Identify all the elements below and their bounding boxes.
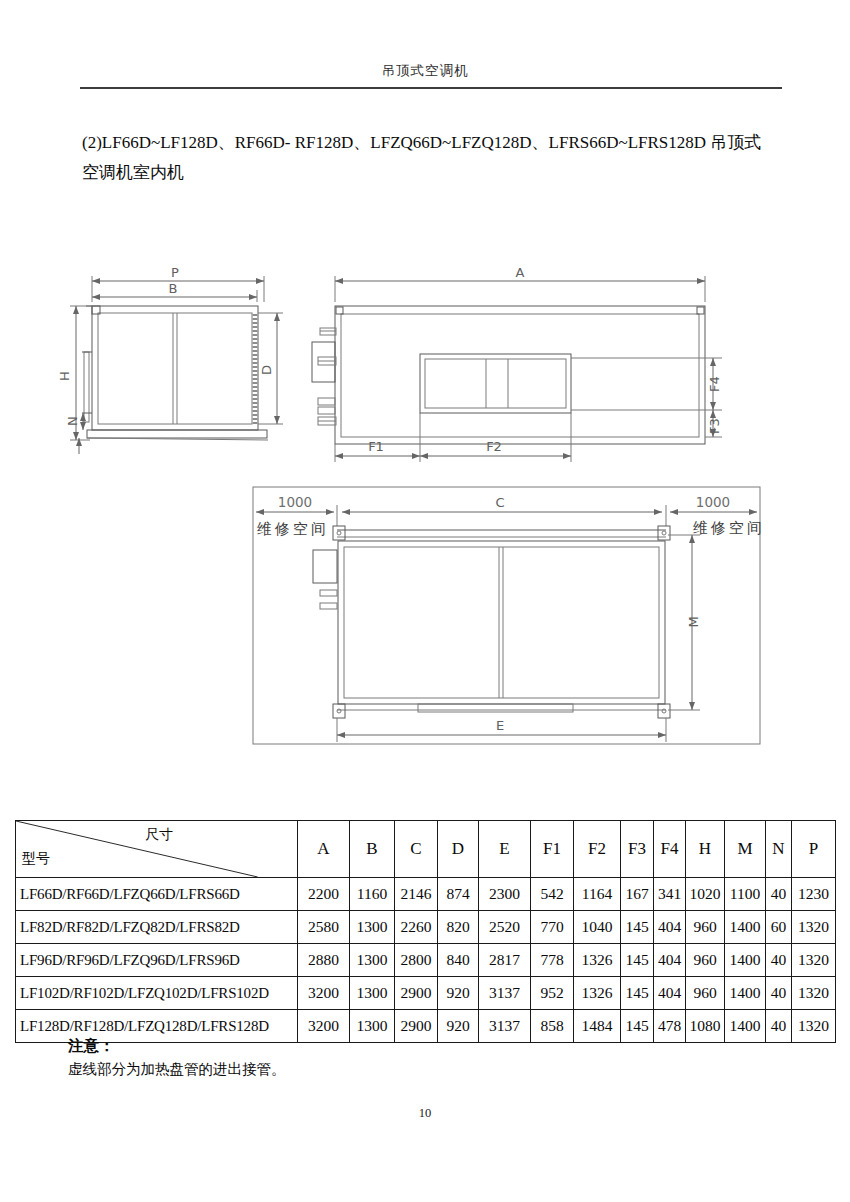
corner-label-model: 型号: [22, 850, 50, 868]
value-cell: 858: [531, 1010, 574, 1043]
value-cell: 1040: [574, 911, 621, 944]
dim-label-d: D: [259, 365, 274, 375]
section-title-line1: (2)LF66D~LF128D、RF66D- RF128D、LFZQ66D~LF…: [82, 128, 798, 158]
section-title: (2)LF66D~LF128D、RF66D- RF128D、LFZQ66D~LF…: [82, 128, 798, 188]
value-cell: 404: [654, 944, 686, 977]
table-row: LF66D/RF66D/LFZQ66D/LFRS66D 2200 1160 21…: [16, 878, 836, 911]
dim-label-clearance-left: 1000: [278, 494, 312, 510]
value-cell: 60: [766, 911, 792, 944]
value-cell: 1326: [574, 944, 621, 977]
document-page: 吊顶式空调机 (2)LF66D~LF128D、RF66D- RF128D、LFZ…: [0, 0, 850, 1202]
value-cell: 40: [766, 977, 792, 1010]
header-divider: [80, 87, 782, 89]
value-cell: 960: [686, 911, 725, 944]
value-cell: 3137: [479, 977, 531, 1010]
value-cell: 404: [654, 977, 686, 1010]
value-cell: 840: [438, 944, 479, 977]
value-cell: 40: [766, 1010, 792, 1043]
col-header-f2: F2: [574, 821, 621, 878]
value-cell: 2520: [479, 911, 531, 944]
value-cell: 2880: [298, 944, 350, 977]
note-body: 虚线部分为加热盘管的进出接管。: [68, 1060, 286, 1079]
value-cell: 2200: [298, 878, 350, 911]
col-header-e: E: [479, 821, 531, 878]
value-cell: 1320: [792, 1010, 836, 1043]
value-cell: 920: [438, 1010, 479, 1043]
value-cell: 1300: [350, 1010, 395, 1043]
value-cell: 2146: [395, 878, 438, 911]
model-cell: LF96D/RF96D/LFZQ96D/LFRS96D: [16, 944, 298, 977]
value-cell: 478: [654, 1010, 686, 1043]
value-cell: 952: [531, 977, 574, 1010]
section-title-line2: 空调机室内机: [82, 158, 798, 188]
col-header-c: C: [395, 821, 438, 878]
running-header: 吊顶式空调机: [0, 62, 850, 80]
value-cell: 1326: [574, 977, 621, 1010]
dim-label-f1: F1: [368, 439, 384, 454]
dim-label-clearance-right: 1000: [696, 494, 730, 510]
dim-label-f3: F3: [707, 418, 722, 434]
value-cell: 1400: [725, 1010, 766, 1043]
value-cell: 3200: [298, 977, 350, 1010]
value-cell: 960: [686, 977, 725, 1010]
value-cell: 145: [621, 1010, 654, 1043]
plan-view-drawing: 1000 C 1000 维修空间 维修空间: [253, 487, 765, 744]
value-cell: 1100: [725, 878, 766, 911]
dim-label-b: B: [169, 281, 178, 296]
value-cell: 874: [438, 878, 479, 911]
service-space-label-left: 维修空间: [257, 521, 329, 537]
col-header-h: H: [686, 821, 725, 878]
value-cell: 1230: [792, 878, 836, 911]
dim-label-h: H: [57, 371, 72, 381]
table-row: LF82D/RF82D/LFZQ82D/LFRS82D 2580 1300 22…: [16, 911, 836, 944]
dim-label-m: M: [686, 616, 701, 627]
table-corner-cell: 尺寸 型号: [16, 821, 298, 878]
dim-label-e: E: [496, 718, 504, 733]
note-title: 注意：: [68, 1036, 286, 1057]
front-view-drawing: A F4 F3 F1 F2: [312, 265, 722, 462]
value-cell: 341: [654, 878, 686, 911]
value-cell: 778: [531, 944, 574, 977]
value-cell: 1320: [792, 977, 836, 1010]
col-header-n: N: [766, 821, 792, 878]
value-cell: 2260: [395, 911, 438, 944]
side-view-drawing: P B H N D: [57, 265, 283, 454]
value-cell: 3200: [298, 1010, 350, 1043]
value-cell: 2817: [479, 944, 531, 977]
value-cell: 1300: [350, 911, 395, 944]
value-cell: 2900: [395, 1010, 438, 1043]
value-cell: 2900: [395, 977, 438, 1010]
dim-label-n: N: [65, 416, 80, 426]
col-header-p: P: [792, 821, 836, 878]
value-cell: 1320: [792, 944, 836, 977]
value-cell: 542: [531, 878, 574, 911]
technical-drawings: P B H N D: [0, 230, 850, 780]
col-header-f3: F3: [621, 821, 654, 878]
value-cell: 1164: [574, 878, 621, 911]
service-space-label-right: 维修空间: [693, 520, 765, 536]
value-cell: 3137: [479, 1010, 531, 1043]
dimensions-table: 尺寸 型号 A B C D E F1 F2 F3 F4 H M N P LF66…: [15, 820, 836, 1043]
value-cell: 404: [654, 911, 686, 944]
value-cell: 1080: [686, 1010, 725, 1043]
corner-label-dimension: 尺寸: [145, 826, 173, 844]
value-cell: 1300: [350, 944, 395, 977]
value-cell: 145: [621, 944, 654, 977]
dim-label-c: C: [495, 495, 504, 510]
value-cell: 1160: [350, 878, 395, 911]
dim-label-f4: F4: [707, 376, 722, 392]
col-header-f1: F1: [531, 821, 574, 878]
value-cell: 1484: [574, 1010, 621, 1043]
value-cell: 1400: [725, 944, 766, 977]
col-header-a: A: [298, 821, 350, 878]
col-header-d: D: [438, 821, 479, 878]
model-cell: LF102D/RF102D/LFZQ102D/LFRS102D: [16, 977, 298, 1010]
dim-label-p: P: [171, 265, 179, 280]
value-cell: 1400: [725, 911, 766, 944]
value-cell: 1020: [686, 878, 725, 911]
col-header-m: M: [725, 821, 766, 878]
dim-label-f2: F2: [486, 439, 502, 454]
table-row: LF96D/RF96D/LFZQ96D/LFRS96D 2880 1300 28…: [16, 944, 836, 977]
col-header-b: B: [350, 821, 395, 878]
value-cell: 1400: [725, 977, 766, 1010]
value-cell: 2300: [479, 878, 531, 911]
value-cell: 960: [686, 944, 725, 977]
note-block: 注意： 虚线部分为加热盘管的进出接管。: [68, 1036, 286, 1079]
value-cell: 2800: [395, 944, 438, 977]
value-cell: 40: [766, 878, 792, 911]
table-header-row: 尺寸 型号 A B C D E F1 F2 F3 F4 H M N P: [16, 821, 836, 878]
page-number: 10: [0, 1106, 850, 1121]
value-cell: 2580: [298, 911, 350, 944]
col-header-f4: F4: [654, 821, 686, 878]
value-cell: 40: [766, 944, 792, 977]
dim-label-a: A: [516, 265, 525, 280]
value-cell: 1320: [792, 911, 836, 944]
value-cell: 920: [438, 977, 479, 1010]
value-cell: 770: [531, 911, 574, 944]
value-cell: 145: [621, 911, 654, 944]
model-cell: LF82D/RF82D/LFZQ82D/LFRS82D: [16, 911, 298, 944]
value-cell: 820: [438, 911, 479, 944]
value-cell: 145: [621, 977, 654, 1010]
value-cell: 1300: [350, 977, 395, 1010]
model-cell: LF66D/RF66D/LFZQ66D/LFRS66D: [16, 878, 298, 911]
value-cell: 167: [621, 878, 654, 911]
table-row: LF102D/RF102D/LFZQ102D/LFRS102D 3200 130…: [16, 977, 836, 1010]
